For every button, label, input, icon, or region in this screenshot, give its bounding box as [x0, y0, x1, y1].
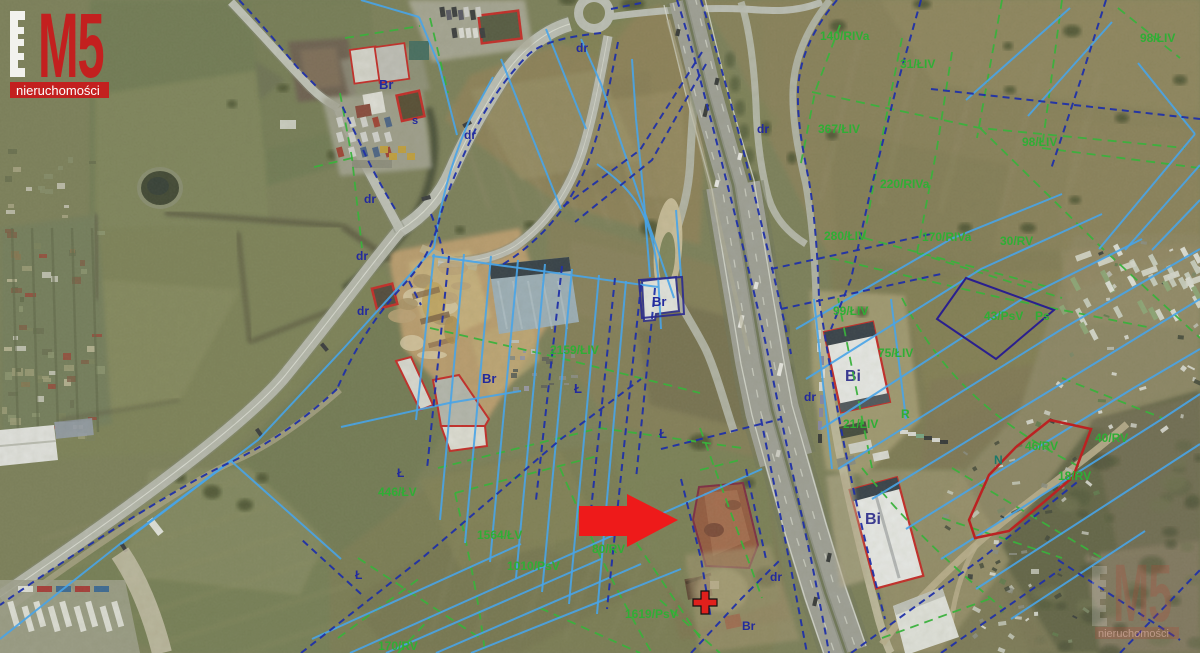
svg-text:446/ŁV: 446/ŁV	[378, 485, 417, 499]
svg-text:98/ŁIV: 98/ŁIV	[1022, 135, 1057, 149]
svg-text:30/RV: 30/RV	[1000, 234, 1033, 248]
svg-text:170/RV: 170/RV	[378, 639, 418, 653]
svg-text:R: R	[901, 407, 910, 421]
svg-text:1010/PsV: 1010/PsV	[507, 559, 560, 573]
svg-text:99/ŁIV: 99/ŁIV	[833, 304, 868, 318]
svg-text:dr: dr	[757, 122, 769, 136]
svg-text:dr: dr	[804, 390, 816, 404]
svg-text:Ps: Ps	[1035, 309, 1050, 323]
svg-text:2159/ŁIV: 2159/ŁIV	[550, 343, 599, 357]
svg-text:Ł: Ł	[397, 466, 404, 480]
svg-text:43/PsV: 43/PsV	[984, 309, 1023, 323]
svg-text:Br: Br	[652, 294, 666, 309]
svg-text:Ł: Ł	[574, 381, 582, 396]
svg-text:Br: Br	[379, 77, 393, 92]
svg-text:N: N	[994, 453, 1003, 467]
svg-text:nieruchomości: nieruchomości	[1098, 628, 1169, 640]
svg-text:s: s	[412, 115, 418, 127]
svg-text:M5: M5	[1113, 547, 1171, 638]
svg-text:dr: dr	[357, 304, 369, 318]
svg-text:31/ŁIV: 31/ŁIV	[900, 57, 935, 71]
svg-text:dr: dr	[356, 249, 368, 263]
svg-text:Br: Br	[742, 619, 756, 633]
svg-text:dr: dr	[770, 570, 782, 584]
svg-text:21/ŁIV: 21/ŁIV	[843, 417, 878, 431]
svg-text:Ł: Ł	[659, 426, 667, 441]
svg-text:dr: dr	[364, 192, 376, 206]
svg-text:98/ŁIV: 98/ŁIV	[1140, 31, 1175, 45]
svg-text:1619/PsV: 1619/PsV	[625, 607, 678, 621]
svg-text:140/RIVa: 140/RIVa	[820, 29, 870, 43]
svg-text:1564/ŁV: 1564/ŁV	[477, 528, 522, 542]
svg-text:18/RV: 18/RV	[1058, 469, 1091, 483]
svg-text:367/ŁIV: 367/ŁIV	[818, 122, 860, 136]
svg-text:dr: dr	[464, 128, 476, 142]
svg-text:nieruchomości: nieruchomości	[16, 83, 100, 98]
svg-text:Br: Br	[482, 371, 496, 386]
svg-text:dr: dr	[576, 41, 588, 55]
svg-text:170/RIVa: 170/RIVa	[922, 230, 972, 244]
svg-text:Ł: Ł	[355, 568, 362, 582]
svg-text:75/ŁIV: 75/ŁIV	[878, 346, 913, 360]
svg-text:80/RV: 80/RV	[592, 542, 625, 556]
svg-text:280/ŁIV: 280/ŁIV	[824, 229, 866, 243]
svg-text:220/RIVa: 220/RIVa	[880, 177, 930, 191]
svg-text:46/RV: 46/RV	[1025, 439, 1058, 453]
svg-text:40/RV: 40/RV	[1095, 431, 1128, 445]
